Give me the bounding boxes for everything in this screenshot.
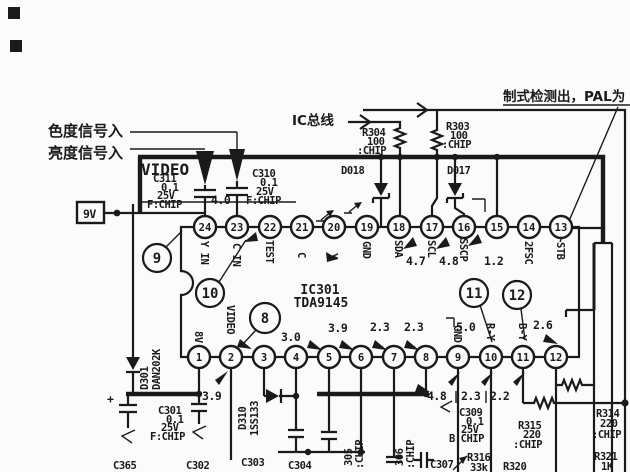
callout-number: 8 — [261, 311, 269, 327]
pin-number: 21 — [296, 222, 309, 234]
d301-part: DAN202K — [151, 348, 163, 390]
ic-right-edge — [568, 227, 579, 357]
pin24-name: Y IN — [198, 241, 210, 264]
r321-value: 1K — [601, 461, 614, 472]
ic-bus-label: IC总线 — [292, 112, 334, 129]
c304-capacitor — [321, 432, 337, 452]
pin-number: 5 — [326, 352, 332, 364]
d310-ref: D310 — [237, 407, 249, 430]
c302-ref: C302 — [186, 460, 209, 472]
c301-note: F:CHIP — [150, 431, 185, 443]
pin-number: 7 — [391, 352, 397, 364]
probe-flag-pin2 — [215, 371, 228, 385]
schematic-page: 24 23 22 21 20 19 18 17 16 15 14 13 1 2 … — [0, 0, 630, 472]
pin-number: 20 — [328, 222, 341, 234]
r304-note: :CHIP — [357, 145, 386, 157]
volt-pin8: 5.0 — [456, 320, 476, 334]
schematic-canvas: 24 23 22 21 20 19 18 17 16 15 14 13 1 2 … — [0, 0, 630, 472]
pin-number: 8 — [423, 352, 429, 364]
d018-diode-icon — [374, 183, 388, 196]
probe-flag-pin18 — [403, 237, 417, 249]
scan-mark — [8, 7, 20, 19]
probe-flag-pin8 — [404, 340, 419, 350]
d018-ref: D018 — [341, 165, 364, 177]
pin22-name: TEST — [263, 240, 275, 263]
scan-mark — [10, 40, 22, 52]
pin-number: 1 — [196, 352, 202, 364]
ic-part: TDA9145 — [294, 296, 349, 311]
c301-ground-hook — [193, 426, 206, 439]
c311-note: F:CHIP — [147, 199, 182, 211]
pin21-name: C — [295, 252, 307, 258]
c301-capacitor — [191, 404, 207, 424]
r315-note: :CHIP — [513, 439, 542, 451]
pin-number: 12 — [550, 352, 563, 364]
pin10-name: R-Y — [484, 323, 496, 342]
supply-label: 9V — [83, 207, 96, 221]
c306-note: :CHIP — [405, 440, 417, 469]
pin-number: 14 — [523, 222, 536, 234]
volt-pin5: 3.9 — [328, 321, 348, 335]
probe-flag-pin7 — [372, 340, 387, 350]
pin-number: 22 — [264, 222, 277, 234]
volt-pin11: 2.6 — [533, 318, 553, 332]
d017-ref: D017 — [447, 165, 470, 177]
c310-note: F:CHIP — [246, 195, 281, 207]
volt-pin4: 3.0 — [281, 330, 301, 344]
c305-note: :CHIP — [354, 440, 366, 469]
r314-note: :CHIP — [592, 429, 621, 441]
r315-link — [523, 398, 625, 408]
d017-diode-icon — [448, 183, 462, 196]
bus-arrowheads — [360, 103, 427, 129]
coupling-voltage: 4.0 — [211, 193, 231, 207]
probe-flag-pin3 — [237, 339, 252, 349]
c365-ref: C365 — [113, 460, 136, 472]
chroma-input-label: 色度信号入 — [48, 122, 123, 140]
pin-number: 18 — [393, 222, 406, 234]
callout-number: 12 — [509, 288, 526, 304]
input-leader-lines — [130, 132, 237, 149]
i2c-scl-line — [363, 110, 625, 472]
r320-ref: R320 — [503, 461, 526, 472]
callout-number: 9 — [153, 251, 161, 267]
c307-ref: C307 — [430, 459, 453, 471]
d310-diode-icon — [266, 389, 279, 403]
pin18-name: SDA — [392, 240, 404, 259]
pin-number: 19 — [361, 222, 374, 234]
pin-number: 10 — [485, 352, 498, 364]
probe-flag-pin12 — [543, 334, 558, 344]
pin13-name: STB — [554, 242, 566, 260]
pin-number: 6 — [358, 352, 364, 364]
volt-pin2: 3.9 — [202, 389, 222, 403]
c303-ref: C303 — [241, 457, 264, 469]
volt-pin16: 1.2 — [484, 254, 503, 268]
callout-number: 11 — [466, 286, 483, 302]
pin-number: 23 — [231, 222, 244, 234]
standard-detect-label: 制式检测出，PAL为 — [503, 88, 625, 105]
pin-number: 16 — [458, 222, 471, 234]
pin17-name: SCL — [425, 240, 437, 258]
gnd-arrowhead-icon — [354, 202, 362, 209]
d301-diode-icon — [126, 357, 140, 370]
r303-branch — [432, 110, 442, 216]
junction-dots — [114, 154, 629, 455]
volt-pin18: 4.7 — [406, 254, 426, 268]
c365-capacitor — [119, 394, 137, 428]
c304-ref: C304 — [288, 460, 311, 472]
callout-number: 10 — [202, 286, 219, 302]
pin-number: 17 — [426, 222, 439, 234]
c303-capacitor — [288, 430, 304, 452]
probe-flag-pin6 — [339, 340, 354, 350]
r303-note: :CHIP — [442, 139, 471, 151]
luma-input-label: 亮度信号入 — [48, 144, 123, 162]
pin14-name: 2FSC — [522, 241, 534, 264]
pin-number: 3 — [261, 352, 267, 364]
volt-pin7: 2.3 — [404, 320, 424, 334]
d301-ref: D301 — [139, 367, 151, 390]
c309-note: B:CHIP — [449, 433, 484, 445]
pin16-name: SSCP — [457, 238, 469, 261]
pin-number: 11 — [517, 352, 530, 364]
r314-link — [556, 380, 594, 390]
volt-pin17: 4.8 — [439, 254, 459, 268]
chroma-input-arrow-icon — [229, 149, 245, 181]
labels: 色度信号入 亮度信号入 IC总线 制式检测出，PAL为 9V VIDEO IC3… — [48, 88, 625, 311]
r316-value: 33k — [470, 462, 489, 472]
pin1-name: 8V — [192, 331, 204, 344]
probe-flag-pin17 — [436, 237, 450, 249]
pin23-name: C IN — [230, 243, 242, 266]
pin-number: 24 — [199, 222, 212, 234]
pin-number: 2 — [228, 352, 234, 364]
volt-pin6: 2.3 — [370, 320, 390, 334]
pin-number: 13 — [555, 222, 568, 234]
pin19-name: GND — [360, 241, 372, 259]
c365-polarity: + — [107, 392, 114, 406]
d310-part: 1SS133 — [249, 401, 261, 436]
volt-row-2: 2.3 — [461, 389, 481, 403]
pin-number: 4 — [293, 352, 299, 364]
volt-row-3: 2.2 — [490, 389, 509, 403]
pin-number: 15 — [491, 222, 504, 234]
luma-input-arrow-icon — [196, 151, 214, 185]
c365-ground-hook — [122, 430, 135, 443]
pin-number: 9 — [455, 352, 461, 364]
probe-flag-pin5 — [307, 340, 322, 350]
volt-row-1: 4.8 — [427, 389, 447, 403]
pin11-name: B-Y — [516, 323, 528, 342]
pin2-name: VIDEO — [224, 305, 236, 334]
